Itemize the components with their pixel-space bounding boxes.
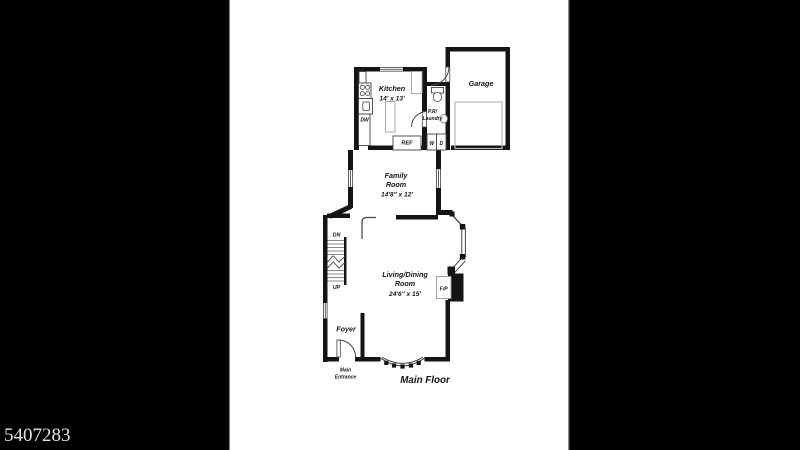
wall-segment: [451, 146, 510, 151]
family-dims: 14'8" x 12': [381, 192, 413, 199]
foyer-label: Foyer: [336, 325, 357, 334]
pantry-counter: [412, 72, 423, 94]
wall-segment: [327, 214, 350, 219]
entrance-label-line2: Entrance: [335, 375, 357, 381]
wall-segment: [344, 237, 347, 285]
kitchen-dims: 14' x 13': [379, 96, 405, 103]
wall-segment: [348, 150, 353, 170]
dw-label: DW: [360, 118, 370, 124]
kitchen-label: Kitchen: [379, 84, 406, 93]
living-dims: 24'6" x 15': [388, 291, 421, 298]
kitchen-island: [386, 102, 396, 133]
wall-segment: [446, 47, 451, 67]
ref-label: REF: [401, 141, 413, 147]
wall-segment: [323, 319, 328, 363]
entry-door-leaf: [337, 340, 340, 357]
toilet-icon: [433, 92, 441, 101]
living-label-line2: Room: [395, 279, 416, 288]
stairs-dn-label: DN: [333, 233, 341, 239]
family-label-line2: Room: [386, 180, 407, 189]
fireplace-label: F/P: [440, 287, 449, 293]
wall-segment: [396, 215, 438, 220]
wall-segment: [361, 313, 365, 358]
floorplan-canvas: Kitchen 14' x 13' Garage P.R/ Laundry Fa…: [0, 0, 800, 450]
counter: [359, 72, 366, 84]
family-label-line1: Family: [385, 171, 409, 180]
wall-segment: [323, 357, 339, 362]
stairs-up-label: UP: [333, 285, 341, 291]
wall-segment: [323, 215, 328, 303]
wall-segment: [506, 47, 511, 150]
wall-segment: [446, 300, 451, 362]
wall-segment: [354, 67, 380, 72]
listing-id-watermark: 5407283: [4, 425, 71, 446]
wall-segment: [436, 150, 441, 169]
plan-title: Main Floor: [400, 375, 451, 386]
living-label-line1: Living/Dining: [382, 270, 428, 279]
wall-segment: [422, 67, 427, 112]
wall-segment: [446, 47, 511, 52]
floorplan-screenshot: Kitchen 14' x 13' Garage P.R/ Laundry Fa…: [0, 0, 800, 450]
entrance-label-line1: Main: [340, 368, 351, 374]
dryer-label: D: [439, 141, 443, 147]
garage-label: Garage: [469, 79, 494, 88]
wall-segment: [355, 357, 381, 362]
powder-label-line1: P.R/: [428, 109, 438, 115]
powder-label-line2: Laundry: [423, 116, 443, 122]
